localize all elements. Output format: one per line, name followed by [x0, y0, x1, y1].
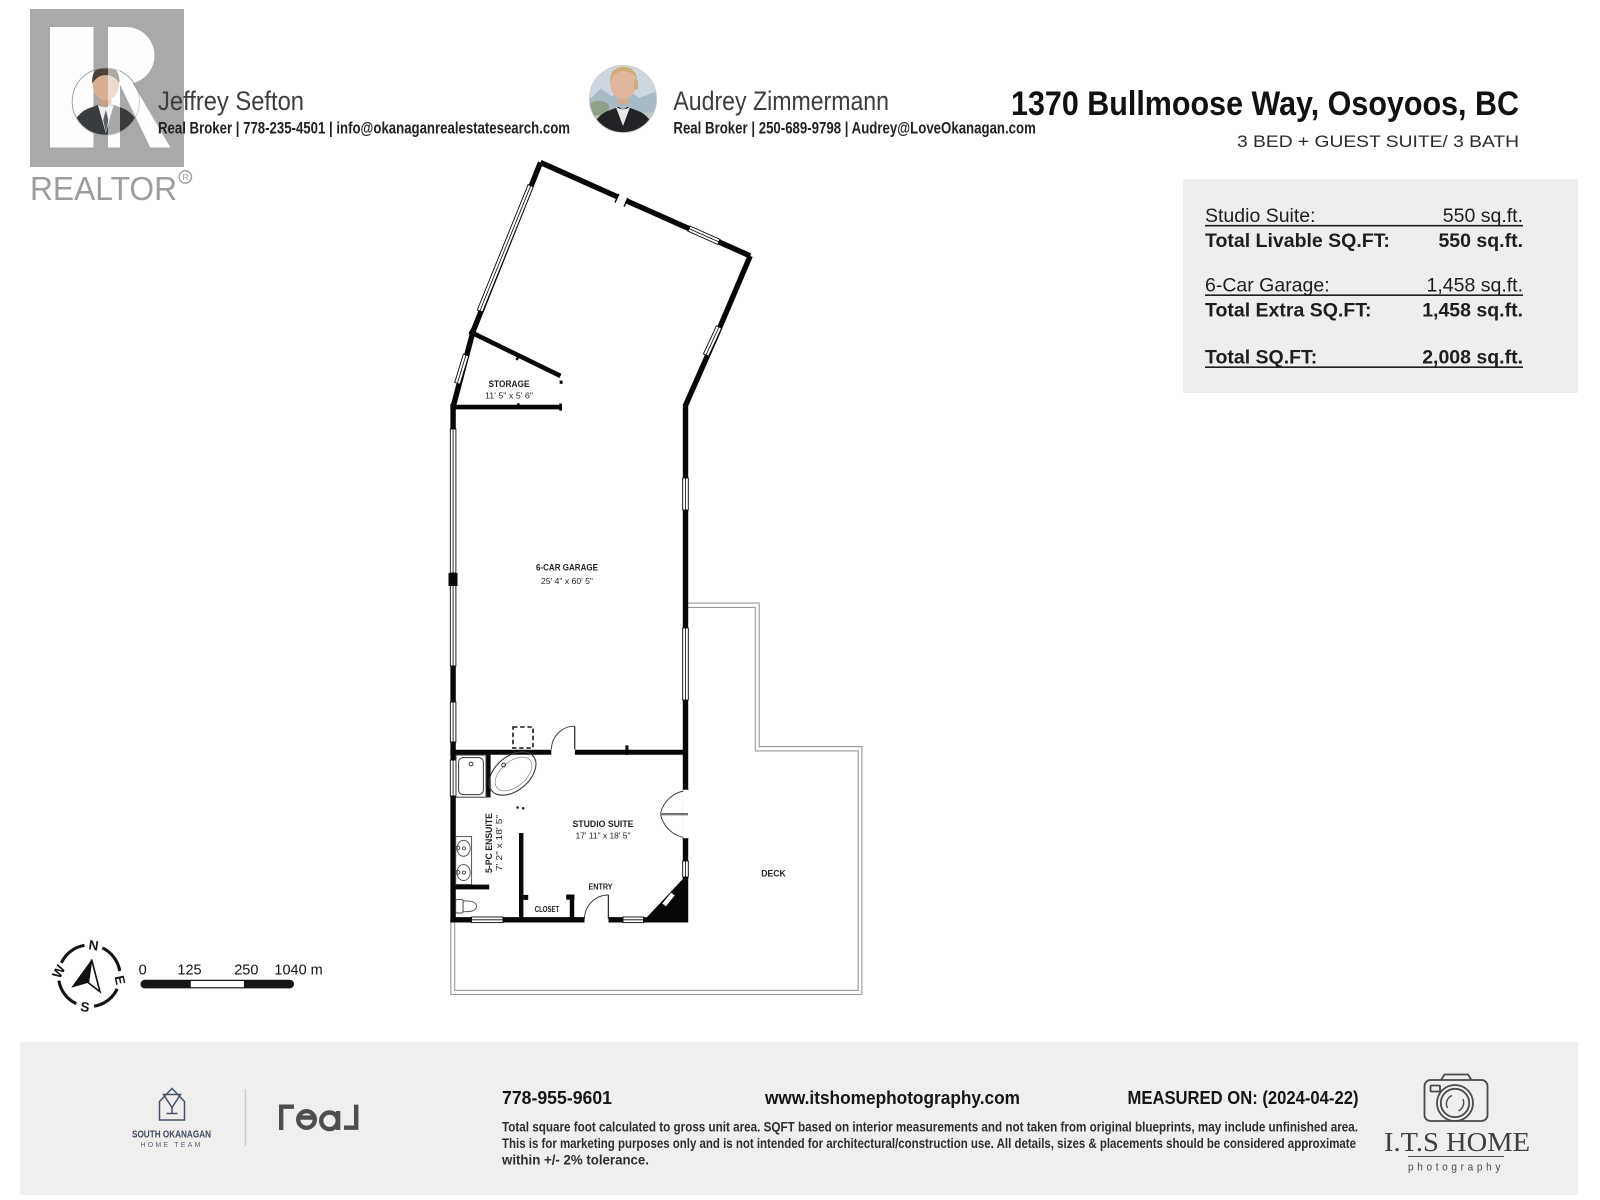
svg-text:Jeffrey Sefton: Jeffrey Sefton — [158, 86, 304, 116]
svg-text:1,458 sq.ft.: 1,458 sq.ft. — [1427, 275, 1523, 297]
svg-text:E: E — [112, 974, 129, 986]
svg-text:CLOSET: CLOSET — [535, 905, 560, 914]
svg-text:DECK: DECK — [761, 869, 786, 879]
svg-text:Total square foot calculated t: Total square foot calculated to gross un… — [502, 1120, 1358, 1135]
svg-text:Real Broker | 250-689-9798 | A: Real Broker | 250-689-9798 | Audrey@Love… — [673, 120, 1036, 138]
svg-text:550 sq.ft.: 550 sq.ft. — [1443, 205, 1523, 227]
svg-text:Audrey Zimmermann: Audrey Zimmermann — [673, 86, 889, 116]
svg-text:Studio Suite:: Studio Suite: — [1205, 205, 1316, 227]
svg-text:STORAGE: STORAGE — [489, 379, 530, 389]
svg-text:W: W — [49, 962, 68, 981]
svg-text:550 sq.ft.: 550 sq.ft. — [1438, 230, 1523, 252]
svg-text:Total Extra SQ.FT:: Total Extra SQ.FT: — [1205, 300, 1372, 322]
svg-text:S: S — [79, 999, 90, 1015]
svg-text:R: R — [182, 172, 188, 182]
svg-text:250: 250 — [234, 963, 258, 979]
svg-text:www.itshomephotography.com: www.itshomephotography.com — [764, 1087, 1020, 1108]
svg-text:MEASURED ON: (2024-04-22): MEASURED ON: (2024-04-22) — [1128, 1087, 1359, 1108]
svg-text:7' 2" x 18' 5": 7' 2" x 18' 5" — [495, 815, 504, 871]
svg-text:1,458 sq.ft.: 1,458 sq.ft. — [1422, 300, 1523, 322]
svg-text:2,008 sq.ft.: 2,008 sq.ft. — [1422, 347, 1523, 369]
svg-text:STUDIO SUITE: STUDIO SUITE — [573, 819, 634, 829]
svg-text:SOUTH OKANAGAN: SOUTH OKANAGAN — [132, 1129, 211, 1141]
svg-text:0: 0 — [139, 963, 147, 979]
svg-text:125: 125 — [177, 963, 201, 979]
svg-text:5-PC ENSUITE: 5-PC ENSUITE — [484, 813, 494, 873]
svg-text:778-955-9601: 778-955-9601 — [502, 1087, 612, 1108]
svg-text:1040 m: 1040 m — [274, 963, 322, 979]
svg-text:within +/- 2% tolerance.: within +/- 2% tolerance. — [501, 1153, 649, 1168]
svg-text:Total SQ.FT:: Total SQ.FT: — [1205, 347, 1317, 369]
svg-text:3 BED + GUEST SUITE/ 3 BATH: 3 BED + GUEST SUITE/ 3 BATH — [1237, 133, 1519, 151]
svg-text:1370 Bullmoose Way, Osoyoos, B: 1370 Bullmoose Way, Osoyoos, BC — [1011, 85, 1519, 123]
svg-text:This is for marketing purposes: This is for marketing purposes only and … — [502, 1136, 1356, 1151]
svg-text:17' 11" x 18' 5": 17' 11" x 18' 5" — [576, 832, 631, 841]
svg-text:25' 4" x 60' 5": 25' 4" x 60' 5" — [541, 577, 593, 586]
svg-text:6-CAR GARAGE: 6-CAR GARAGE — [536, 563, 598, 573]
svg-text:I.T.S HOME: I.T.S HOME — [1384, 1127, 1530, 1157]
svg-text:HOME TEAM: HOME TEAM — [140, 1142, 202, 1149]
svg-text:REALTOR: REALTOR — [30, 170, 177, 207]
svg-text:N: N — [88, 937, 100, 953]
svg-text:Total Livable SQ.FT:: Total Livable SQ.FT: — [1205, 230, 1390, 252]
svg-text:ENTRY: ENTRY — [589, 883, 614, 892]
svg-text:photography: photography — [1408, 1162, 1504, 1174]
svg-text:Real Broker | 778-235-4501 | i: Real Broker | 778-235-4501 | info@okanag… — [158, 120, 570, 138]
svg-text:6-Car Garage:: 6-Car Garage: — [1205, 275, 1330, 297]
svg-text:11' 5" x 5' 6": 11' 5" x 5' 6" — [485, 392, 533, 401]
